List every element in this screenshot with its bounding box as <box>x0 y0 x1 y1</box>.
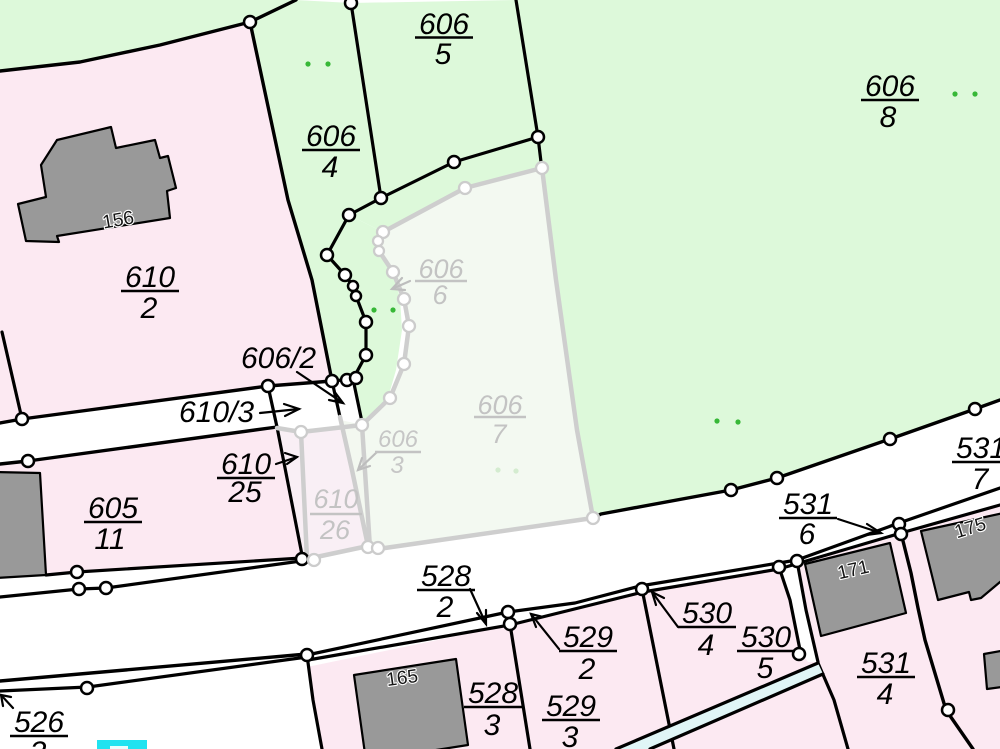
svg-text:526: 526 <box>14 706 64 739</box>
svg-text:3: 3 <box>30 736 47 749</box>
svg-text:606: 606 <box>477 390 523 420</box>
svg-text:531: 531 <box>956 432 1000 465</box>
svg-text:26: 26 <box>319 515 351 545</box>
svg-text:529: 529 <box>546 690 596 723</box>
svg-text:610: 610 <box>313 484 358 514</box>
svg-text:7: 7 <box>972 463 990 496</box>
svg-text:610/3: 610/3 <box>179 396 254 429</box>
svg-text:3: 3 <box>390 452 404 479</box>
svg-text:531: 531 <box>861 647 911 680</box>
svg-text:25: 25 <box>227 476 262 509</box>
svg-text:4: 4 <box>322 151 339 184</box>
svg-text:606: 606 <box>865 70 915 103</box>
svg-text:2: 2 <box>436 591 454 624</box>
svg-text:6: 6 <box>799 518 816 551</box>
svg-text:3: 3 <box>484 709 501 742</box>
svg-text:6: 6 <box>432 280 448 310</box>
svg-text:530: 530 <box>682 597 732 630</box>
svg-text:528: 528 <box>468 677 518 710</box>
svg-text:7: 7 <box>491 419 507 449</box>
svg-text:165: 165 <box>385 666 419 691</box>
svg-text:528: 528 <box>421 560 471 593</box>
svg-text:610: 610 <box>125 261 175 294</box>
svg-text:606/2: 606/2 <box>241 342 316 375</box>
svg-text:3: 3 <box>562 721 579 749</box>
svg-text:8: 8 <box>880 101 897 134</box>
svg-text:606: 606 <box>419 8 469 41</box>
svg-text:2: 2 <box>578 653 596 686</box>
svg-text:2: 2 <box>140 292 158 325</box>
svg-text:529: 529 <box>563 621 613 654</box>
svg-text:605: 605 <box>88 492 138 525</box>
svg-text:11: 11 <box>94 523 125 556</box>
svg-text:531: 531 <box>783 488 833 521</box>
svg-text:4: 4 <box>698 629 715 662</box>
svg-text:4: 4 <box>877 678 894 711</box>
svg-text:5: 5 <box>435 38 452 71</box>
svg-text:606: 606 <box>306 120 356 153</box>
svg-text:606: 606 <box>378 426 419 453</box>
svg-text:530: 530 <box>741 621 791 654</box>
svg-text:5: 5 <box>757 652 774 685</box>
